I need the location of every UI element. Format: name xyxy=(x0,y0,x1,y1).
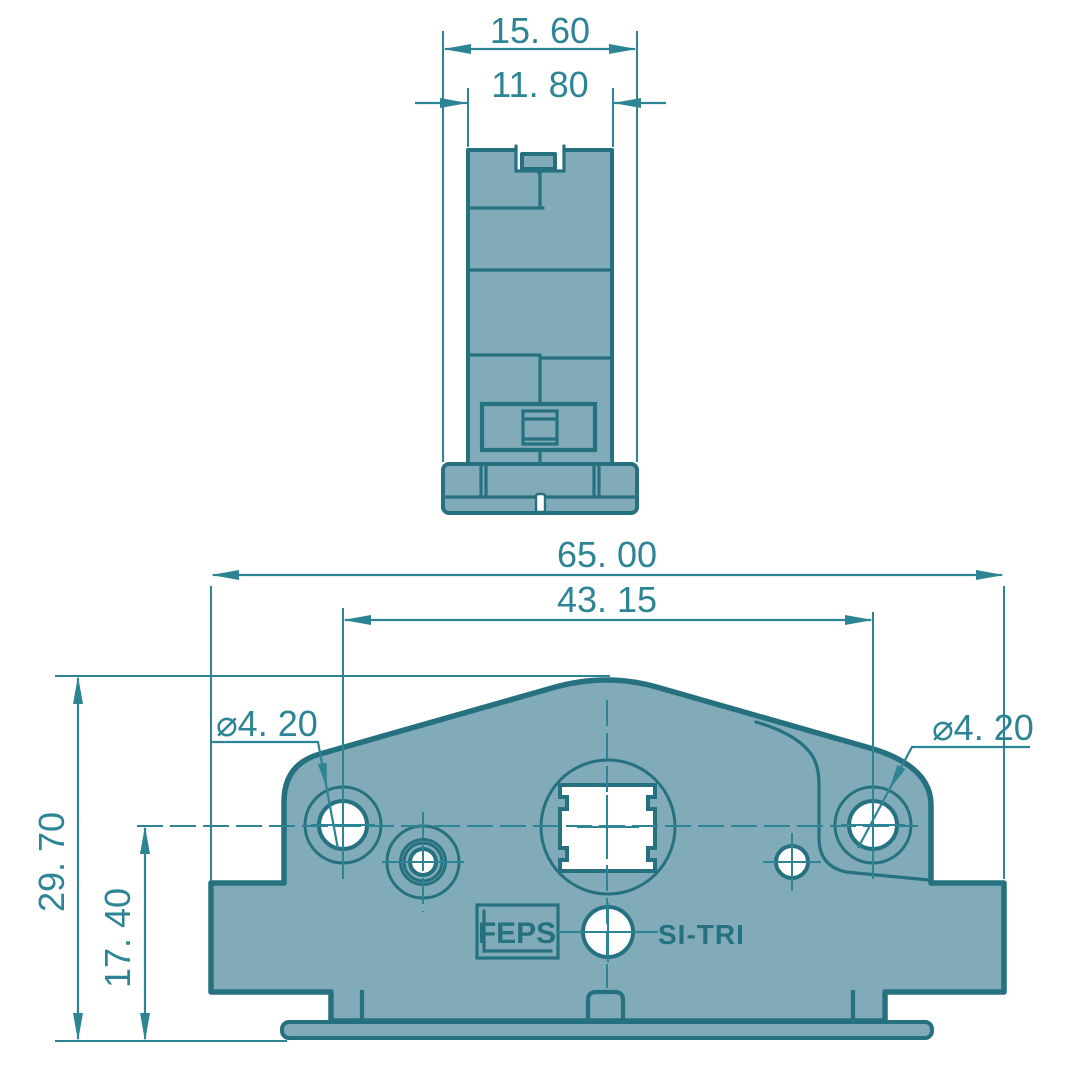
side-view-latch-block xyxy=(522,154,555,169)
arrow-65-00-left xyxy=(211,570,239,580)
logo-text: FEPS xyxy=(478,917,556,950)
arrow-43-15-left xyxy=(343,615,371,625)
arrow-17-40-bottom xyxy=(140,1013,150,1041)
arrow-65-00-right xyxy=(976,570,1004,580)
arrow-29-70-top xyxy=(73,676,83,704)
dim-15-60-label: 15. 60 xyxy=(490,10,590,51)
dim-29-70-label: 29. 70 xyxy=(31,812,72,912)
front-view-foot-strip xyxy=(282,1022,932,1038)
dim-43-15-label: 43. 15 xyxy=(557,579,657,620)
arrow-11-80-right xyxy=(613,98,641,108)
arrow-43-15-right xyxy=(845,615,873,625)
arrow-17-40-top xyxy=(140,826,150,854)
dim-17-40-label: 17. 40 xyxy=(97,888,138,988)
product-text: SI-TRI xyxy=(658,919,745,950)
side-view-base-slot xyxy=(536,494,545,512)
arrow-15-60-left xyxy=(443,44,471,54)
dim-11-80-label: 11. 80 xyxy=(491,64,588,105)
side-view xyxy=(443,145,637,513)
arrow-29-70-bottom xyxy=(73,1013,83,1041)
arrow-15-60-right xyxy=(609,44,637,54)
drawing-svg: 15. 60 11. 80 xyxy=(0,0,1080,1080)
technical-drawing-canvas: 15. 60 11. 80 xyxy=(0,0,1080,1080)
dim-dia-right-label: ⌀4. 20 xyxy=(932,707,1034,748)
dim-dia-left-label: ⌀4. 20 xyxy=(216,703,318,744)
dim-65-00-label: 65. 00 xyxy=(557,534,657,575)
arrow-11-80-left xyxy=(440,98,468,108)
